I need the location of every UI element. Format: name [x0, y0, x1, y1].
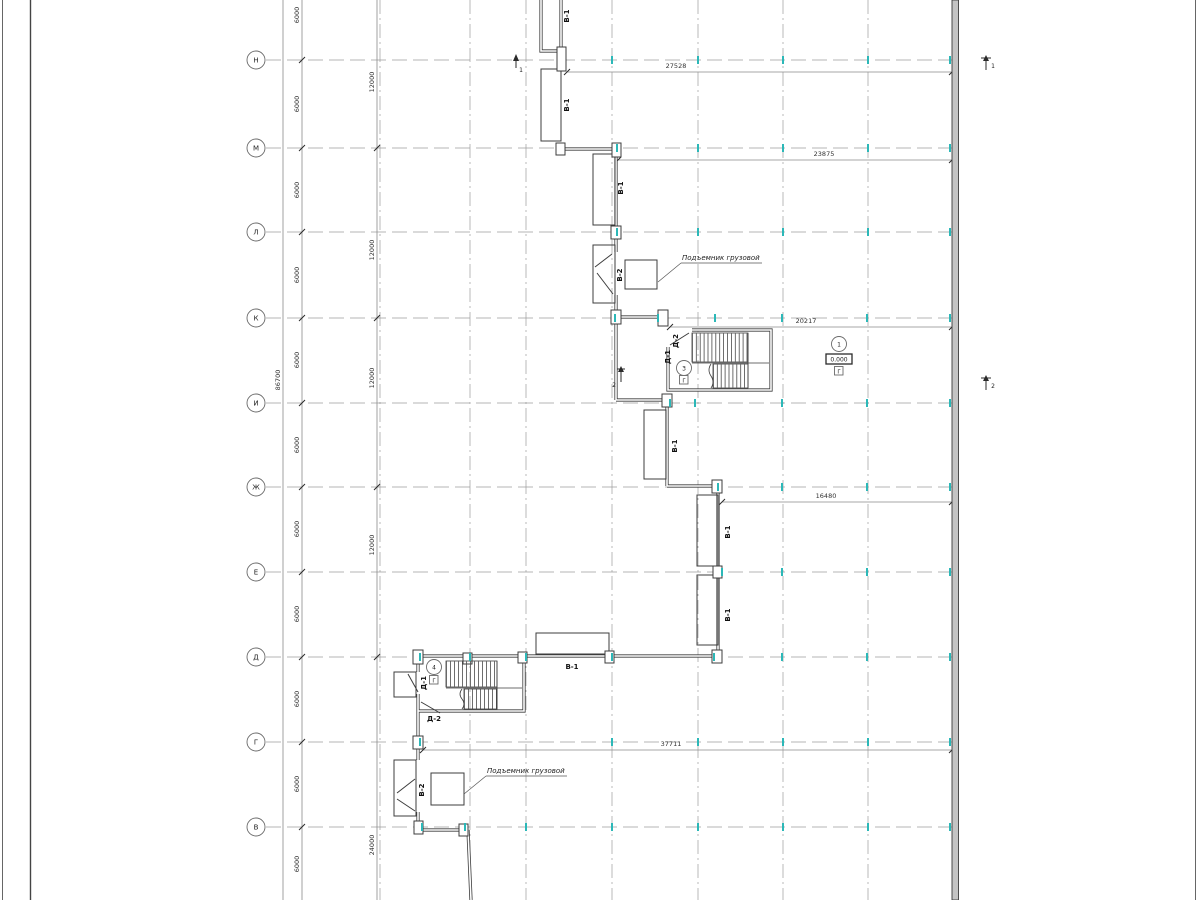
leader-line — [658, 263, 681, 282]
door-opening-reveal — [595, 254, 613, 294]
door-mark: Д-1 — [664, 350, 672, 364]
row-label: К — [254, 315, 259, 323]
dim-label-37711: 37711 — [661, 740, 682, 748]
entrance-canopy — [536, 633, 609, 654]
lift-top: Подъемник грузовой В-2 — [595, 254, 762, 294]
dimension-chains-left: 86700 6000 6000 6000 6000 6000 6000 6000… — [274, 0, 380, 900]
dim-label-6000: 6000 — [293, 856, 301, 873]
wall-panels — [394, 69, 718, 816]
dim-label-12000: 12000 — [368, 240, 376, 261]
leader-line — [464, 776, 486, 794]
dim-label-6000: 6000 — [293, 352, 301, 369]
row-label: Г — [254, 739, 258, 747]
node-number: 4 — [432, 665, 436, 672]
dim-label-6000: 6000 — [293, 182, 301, 199]
wall-panel — [697, 575, 718, 645]
stair-break-line — [709, 364, 713, 388]
pilaster — [713, 566, 722, 578]
dim-label-6000: 6000 — [293, 96, 301, 113]
dim-label-24000: 24000 — [368, 835, 376, 856]
pilaster — [459, 824, 468, 836]
door-mark: Д-2 — [672, 334, 680, 348]
gate-mark: В-1 — [563, 9, 571, 22]
dim-label-20217: 20217 — [796, 317, 817, 325]
row-label: М — [253, 145, 259, 153]
wall-panel — [644, 410, 666, 479]
row-label: Н — [253, 57, 258, 65]
dim-label-12000: 12000 — [368, 535, 376, 556]
section-mark-2-left: 2 — [612, 366, 625, 389]
row-label: Л — [253, 229, 258, 237]
row-label: Е — [254, 569, 258, 577]
grid-ticks — [420, 56, 950, 831]
node-number: 1 — [837, 342, 841, 349]
dim-label-23875: 23875 — [814, 150, 835, 158]
wall-panel — [697, 495, 718, 566]
door-opening-reveal — [397, 779, 415, 811]
gate-mark: В-1 — [724, 608, 732, 621]
dim-label-6000: 6000 — [293, 776, 301, 793]
floor-plan-svg: Н М Л К И Ж Е Д Г В 86700 6000 6000 6000… — [0, 0, 1200, 900]
elevation-value: 0.000 — [830, 357, 847, 364]
column-grid — [380, 0, 868, 900]
dim-label-6000: 6000 — [293, 691, 301, 708]
east-wall — [952, 0, 959, 900]
pilaster — [557, 47, 566, 71]
section-mark-1-left: 1 — [513, 54, 523, 74]
gate-mark: В-1 — [563, 98, 571, 111]
lift-bottom: Подъемник грузовой В-2 — [397, 767, 567, 811]
lift-shaft-box — [431, 773, 464, 805]
dim-label-12000: 12000 — [368, 72, 376, 93]
dim-label-6000: 6000 — [293, 437, 301, 454]
sheet-frame — [3, 0, 1196, 900]
section-number: 1 — [991, 63, 995, 70]
row-label: Д — [253, 654, 259, 662]
row-label: И — [253, 400, 258, 408]
section-number: 2 — [991, 383, 995, 390]
pilaster — [413, 650, 423, 664]
dim-label-6000: 6000 — [293, 521, 301, 538]
dimension-lines-horizontal: 27528 23875 20217 16480 37711 — [420, 62, 955, 753]
pilaster — [658, 310, 668, 326]
lift-note: Подъемник грузовой — [487, 767, 565, 775]
wall-panel — [541, 69, 561, 141]
wall-panel — [394, 672, 416, 697]
gate-mark: В-1 — [671, 439, 679, 452]
facade-walls — [418, 0, 771, 900]
stair-flight-box — [446, 661, 497, 687]
drawing-sheet: Н М Л К И Ж Е Д Г В 86700 6000 6000 6000… — [0, 0, 1200, 900]
stair-flight-box — [713, 364, 748, 388]
row-grid: Н М Л К И Ж Е Д Г В — [247, 51, 952, 836]
gate-mark: В-1 — [724, 525, 732, 538]
door-mark: Д-1 — [420, 676, 428, 690]
section-mark-1-right: 1 — [981, 55, 995, 70]
gate-mark: В-1 — [565, 663, 578, 671]
dim-label-27528: 27528 — [666, 62, 687, 70]
wall-outline-core — [418, 0, 771, 900]
lift-note: Подъемник грузовой — [682, 254, 760, 262]
lift-shaft-box — [625, 260, 657, 289]
row-label: Ж — [252, 484, 260, 492]
row-label: В — [254, 824, 259, 832]
pilaster — [556, 143, 565, 155]
dim-label-6000: 6000 — [293, 7, 301, 24]
section-mark-2-right: 2 — [981, 375, 995, 390]
dim-label-6000: 6000 — [293, 267, 301, 284]
wall-outline — [418, 0, 771, 900]
door-mark: Д-2 — [427, 715, 441, 723]
section-number: 1 — [519, 67, 523, 74]
node-marks: 3 Г 4 Г 1 0.000 Г — [427, 337, 853, 685]
stair-break-line — [460, 689, 464, 709]
dim-label-16480: 16480 — [816, 492, 837, 500]
gate-mark: В-1 — [617, 181, 625, 194]
stair-bottom: Д-1 Д-2 — [408, 661, 522, 723]
pilaster — [413, 736, 423, 749]
lift-mark: В-2 — [616, 268, 624, 281]
wall-panel — [394, 760, 416, 816]
dim-label-overall: 86700 — [274, 370, 282, 391]
section-marks: 1 1 2 2 — [513, 54, 995, 390]
dim-label-12000: 12000 — [368, 368, 376, 389]
section-number: 2 — [612, 382, 616, 389]
dim-label-6000: 6000 — [293, 606, 301, 623]
wall-panel — [593, 154, 615, 225]
lift-mark: В-2 — [418, 783, 426, 796]
node-number: 3 — [682, 366, 686, 373]
